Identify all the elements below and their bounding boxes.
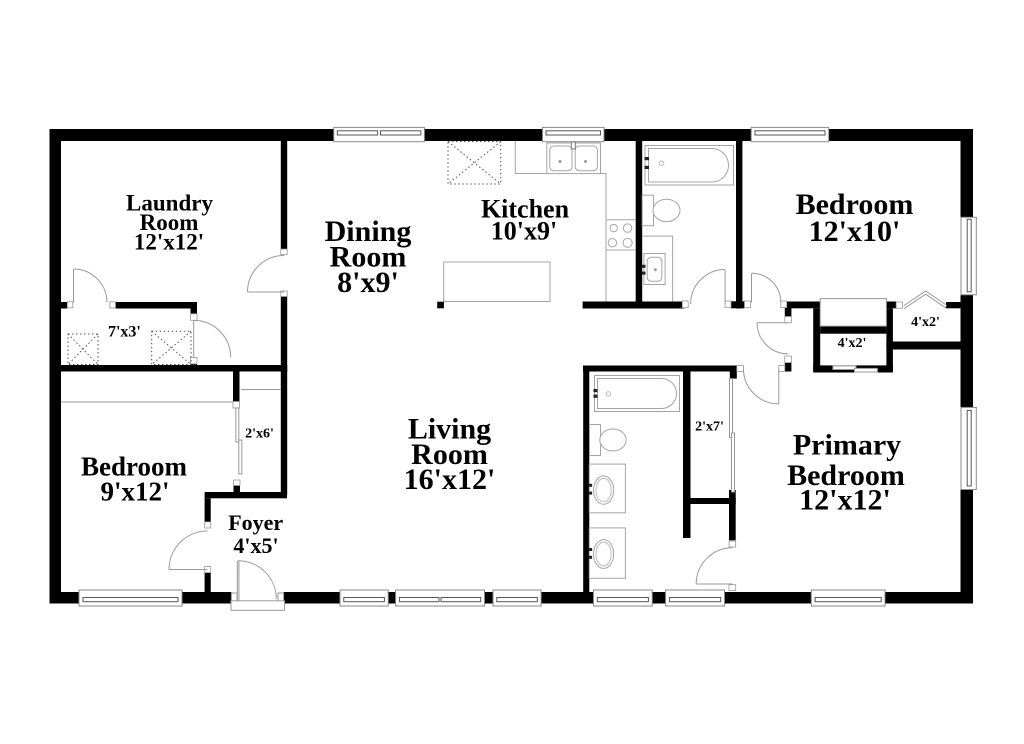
svg-text:2'x7': 2'x7': [695, 420, 724, 435]
svg-text:Primary: Primary: [793, 429, 901, 462]
svg-text:12'x12': 12'x12': [134, 230, 204, 255]
svg-text:7'x3': 7'x3': [108, 324, 141, 341]
svg-text:Foyer: Foyer: [228, 510, 283, 535]
svg-text:4'x5': 4'x5': [233, 533, 278, 558]
svg-text:16'x12': 16'x12': [404, 463, 496, 496]
svg-text:4'x2': 4'x2': [838, 336, 867, 351]
svg-text:9'x12': 9'x12': [100, 477, 169, 507]
svg-text:8'x9': 8'x9': [337, 266, 399, 299]
svg-text:10'x9': 10'x9': [491, 217, 557, 246]
svg-text:12'x12': 12'x12': [799, 484, 891, 517]
svg-text:2'x6': 2'x6': [245, 427, 274, 442]
svg-text:12'x10': 12'x10': [809, 215, 901, 248]
svg-text:4'x2': 4'x2': [911, 315, 940, 330]
